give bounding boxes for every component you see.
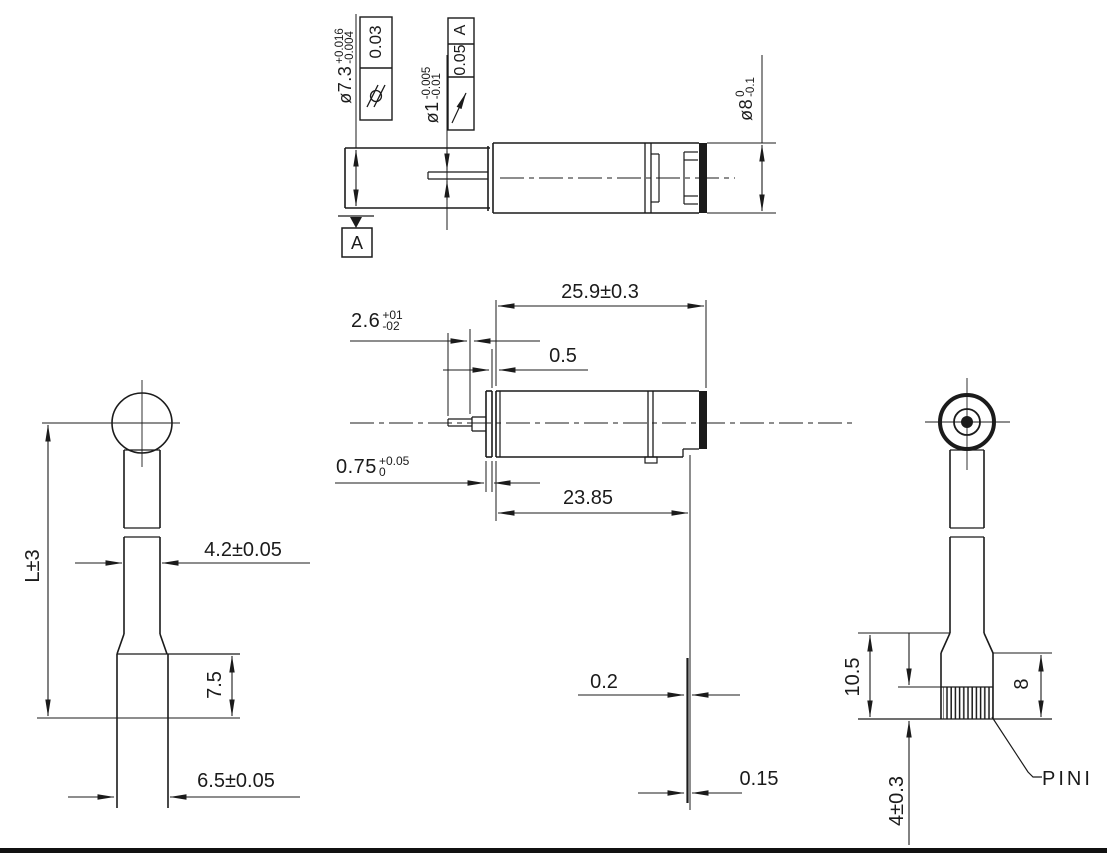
technical-drawing: ø7.3 +0.016 -0.004 0.03 ø1 -0.005 -0.01 …	[0, 0, 1107, 864]
datum-label: A	[342, 230, 372, 256]
tolerance-stack: -0.005 -0.01	[422, 67, 443, 100]
dim-runout-a: 0.2	[579, 670, 629, 694]
dim-runout-b: 0.15	[729, 767, 789, 791]
dim-value: ø8	[736, 99, 757, 121]
circular-runout-icon	[452, 93, 466, 123]
dim-terminal-height: 8	[1010, 672, 1034, 696]
fcf-runout-value: 0.05	[449, 43, 473, 77]
dim-flange-thickness: 0.75 +0.05 0	[336, 453, 456, 481]
top-view-dimensions	[338, 14, 762, 257]
dim-body-diameter: ø8 0 -0.1	[730, 54, 762, 144]
pin1-label: PINI	[1042, 766, 1107, 792]
dim-base-width: 6.5±0.05	[161, 769, 311, 793]
dim-value: 0.75	[336, 456, 377, 479]
cylindricity-icon	[367, 85, 385, 107]
top-view	[345, 143, 776, 213]
dim-shaft-length: 2.6 +01 -02	[351, 307, 461, 335]
tolerance-stack: +01 -02	[382, 310, 402, 332]
dim-collar-diameter: ø7.3 +0.016 -0.004	[328, 6, 362, 126]
dim-total-length: 25.9±0.3	[540, 280, 660, 304]
drawing-geometry	[0, 0, 1107, 864]
dim-shaft-diameter: ø1 -0.005 -0.01	[416, 51, 448, 139]
tolerance-stack: +0.05 0	[379, 456, 409, 478]
fcf-runout-datum-ref: A	[449, 17, 473, 43]
left-side-view	[37, 380, 240, 808]
dim-value: ø1	[422, 101, 443, 123]
left-view-dimensions	[48, 425, 310, 797]
right-side-view	[858, 378, 1052, 719]
dim-overall-length: L±3	[20, 536, 46, 596]
dim-value: ø7.3	[335, 66, 356, 104]
dim-step: 0.5	[538, 344, 588, 368]
drawing-frame-line	[0, 848, 1107, 853]
front-view-dimensions	[335, 300, 742, 810]
fcf-cylindricity-value: 0.03	[363, 17, 389, 67]
dim-right-cap-height: 10.5	[841, 649, 865, 705]
dim-shaft-width: 4.2±0.05	[168, 538, 318, 562]
pin-terminal-hatch	[943, 687, 993, 719]
dim-value: 2.6	[351, 310, 380, 333]
pin-leader-line	[992, 717, 1042, 777]
tolerance-stack: 0 -0.1	[736, 77, 757, 97]
tolerance-stack: +0.016 -0.004	[335, 28, 356, 64]
dim-pin-length: 4±0.3	[885, 763, 909, 839]
dim-cap-height: 7.5	[203, 663, 227, 707]
dim-body-length: 23.85	[538, 486, 638, 510]
